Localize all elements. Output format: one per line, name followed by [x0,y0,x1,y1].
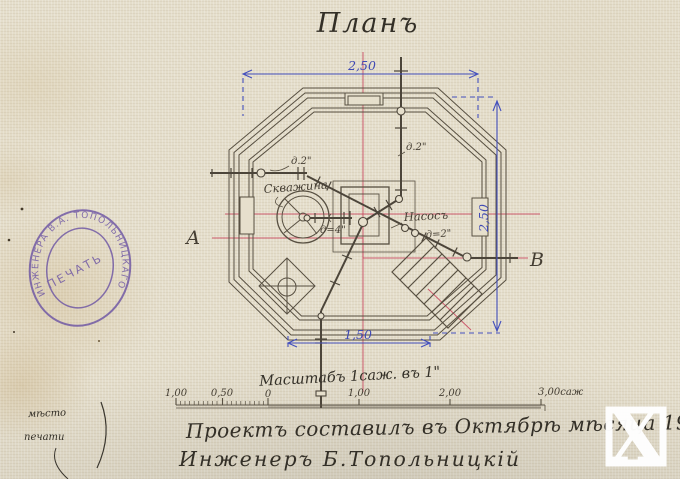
scale-tick-labels: 1,00 0,50 0 1,00 2,00 3,00саж [165,387,584,400]
page-title: Планъ [316,8,420,39]
scale-major-ticks [176,398,541,405]
scale-label-1-left: 1,00 [165,388,188,399]
pump-housing [333,181,415,252]
pipe-d2-left-label: д.2" [291,156,311,167]
section-b-label: В [529,249,544,271]
roof-hatch [345,93,383,105]
margin-note-bracket [97,402,106,468]
dim-bottom-width: 1,50 [344,327,372,342]
dim-right-height: 2,50 [476,204,491,233]
scale-label-3: 3,00саж [538,387,584,398]
scale-note: Масштабъ 1саж. въ 1" [258,364,441,390]
stamp-center-text: ПЕЧАТЬ [44,250,105,291]
table-diamond [259,258,315,314]
pipe-d2-right-label: д=2" [425,228,451,241]
watermark: X [607,393,665,479]
watermark-letter: X [607,393,665,479]
section-a-label: А [184,227,200,249]
interior-fixtures [259,181,482,328]
scale-label-05: 0,50 [211,388,234,399]
margin-note-line-1: мѣсто [28,408,67,420]
margin-flourish [55,448,69,479]
captions: Проектъ составилъ въ Октябрѣ мѣсяца 1911… [178,409,680,471]
pump-label: Насосъ [402,208,448,224]
well-label: Скважина [263,178,328,196]
scanned-drawing-page: { "title": "Планъ", "plan": { "labels": … [0,0,680,479]
caption-line-2: Инженеръ Б.Топольницкій [178,447,521,471]
engineer-stamp: ИНЖЕНЕРА В.А. ТОПОЛЬНИЦКАГО ПЕЧАТЬ [21,202,140,334]
scale-label-2: 2,00 [438,388,462,399]
scale-label-0: 0 [265,389,272,400]
stamp-ring-text: ИНЖЕНЕРА В.А. ТОПОЛЬНИЦКАГО [25,203,138,313]
margin-note: мѣсто печати [24,402,106,479]
margin-note-line-2: печати [24,432,64,443]
dim-top-width: 2,50 [347,58,376,73]
drawing-canvas: 2,50 2,50 1,50 Скважина Насосъ д=4" д.2"… [0,0,680,479]
pipe-d2-top-label: д.2" [406,142,426,153]
left-wall-niche [240,197,254,234]
pipe-d4-label: д=4" [320,225,346,236]
scale-label-1-right: 1,00 [348,388,371,399]
scale-bar: 1,00 0,50 0 1,00 2,00 3,00саж Масштабъ 1… [165,364,584,411]
